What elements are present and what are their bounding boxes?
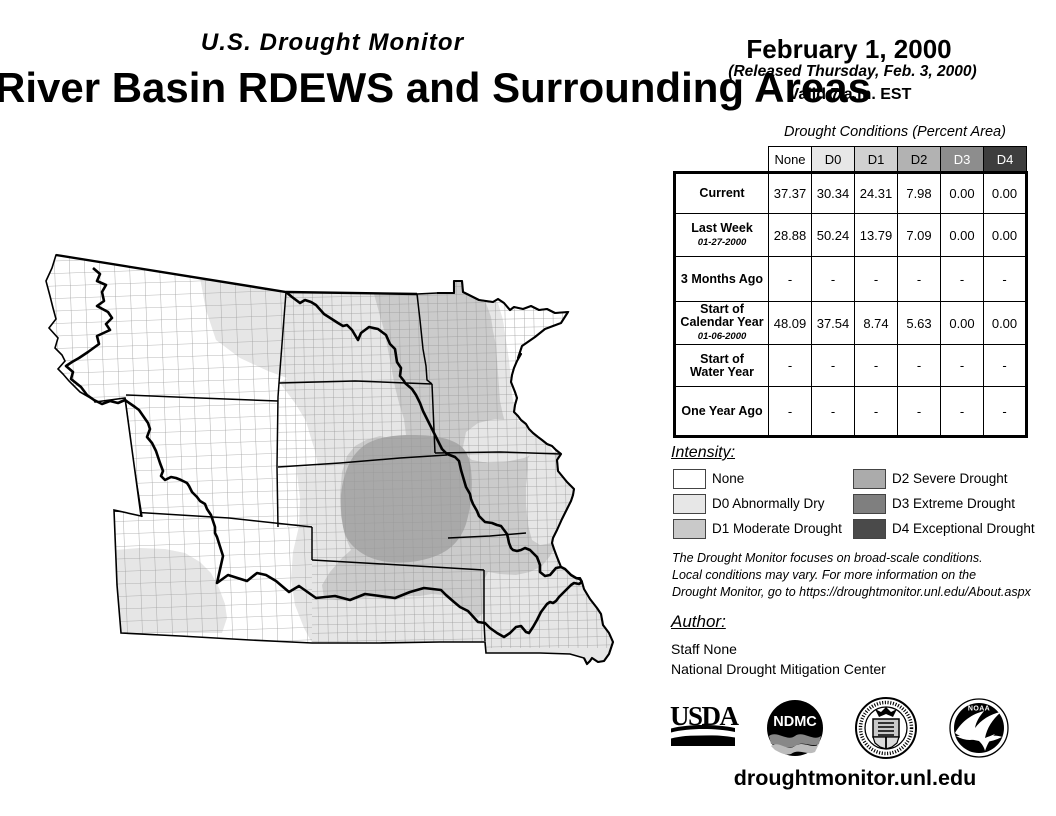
svg-text:NOAA: NOAA (968, 706, 990, 713)
svg-text:NDMC: NDMC (773, 714, 817, 730)
